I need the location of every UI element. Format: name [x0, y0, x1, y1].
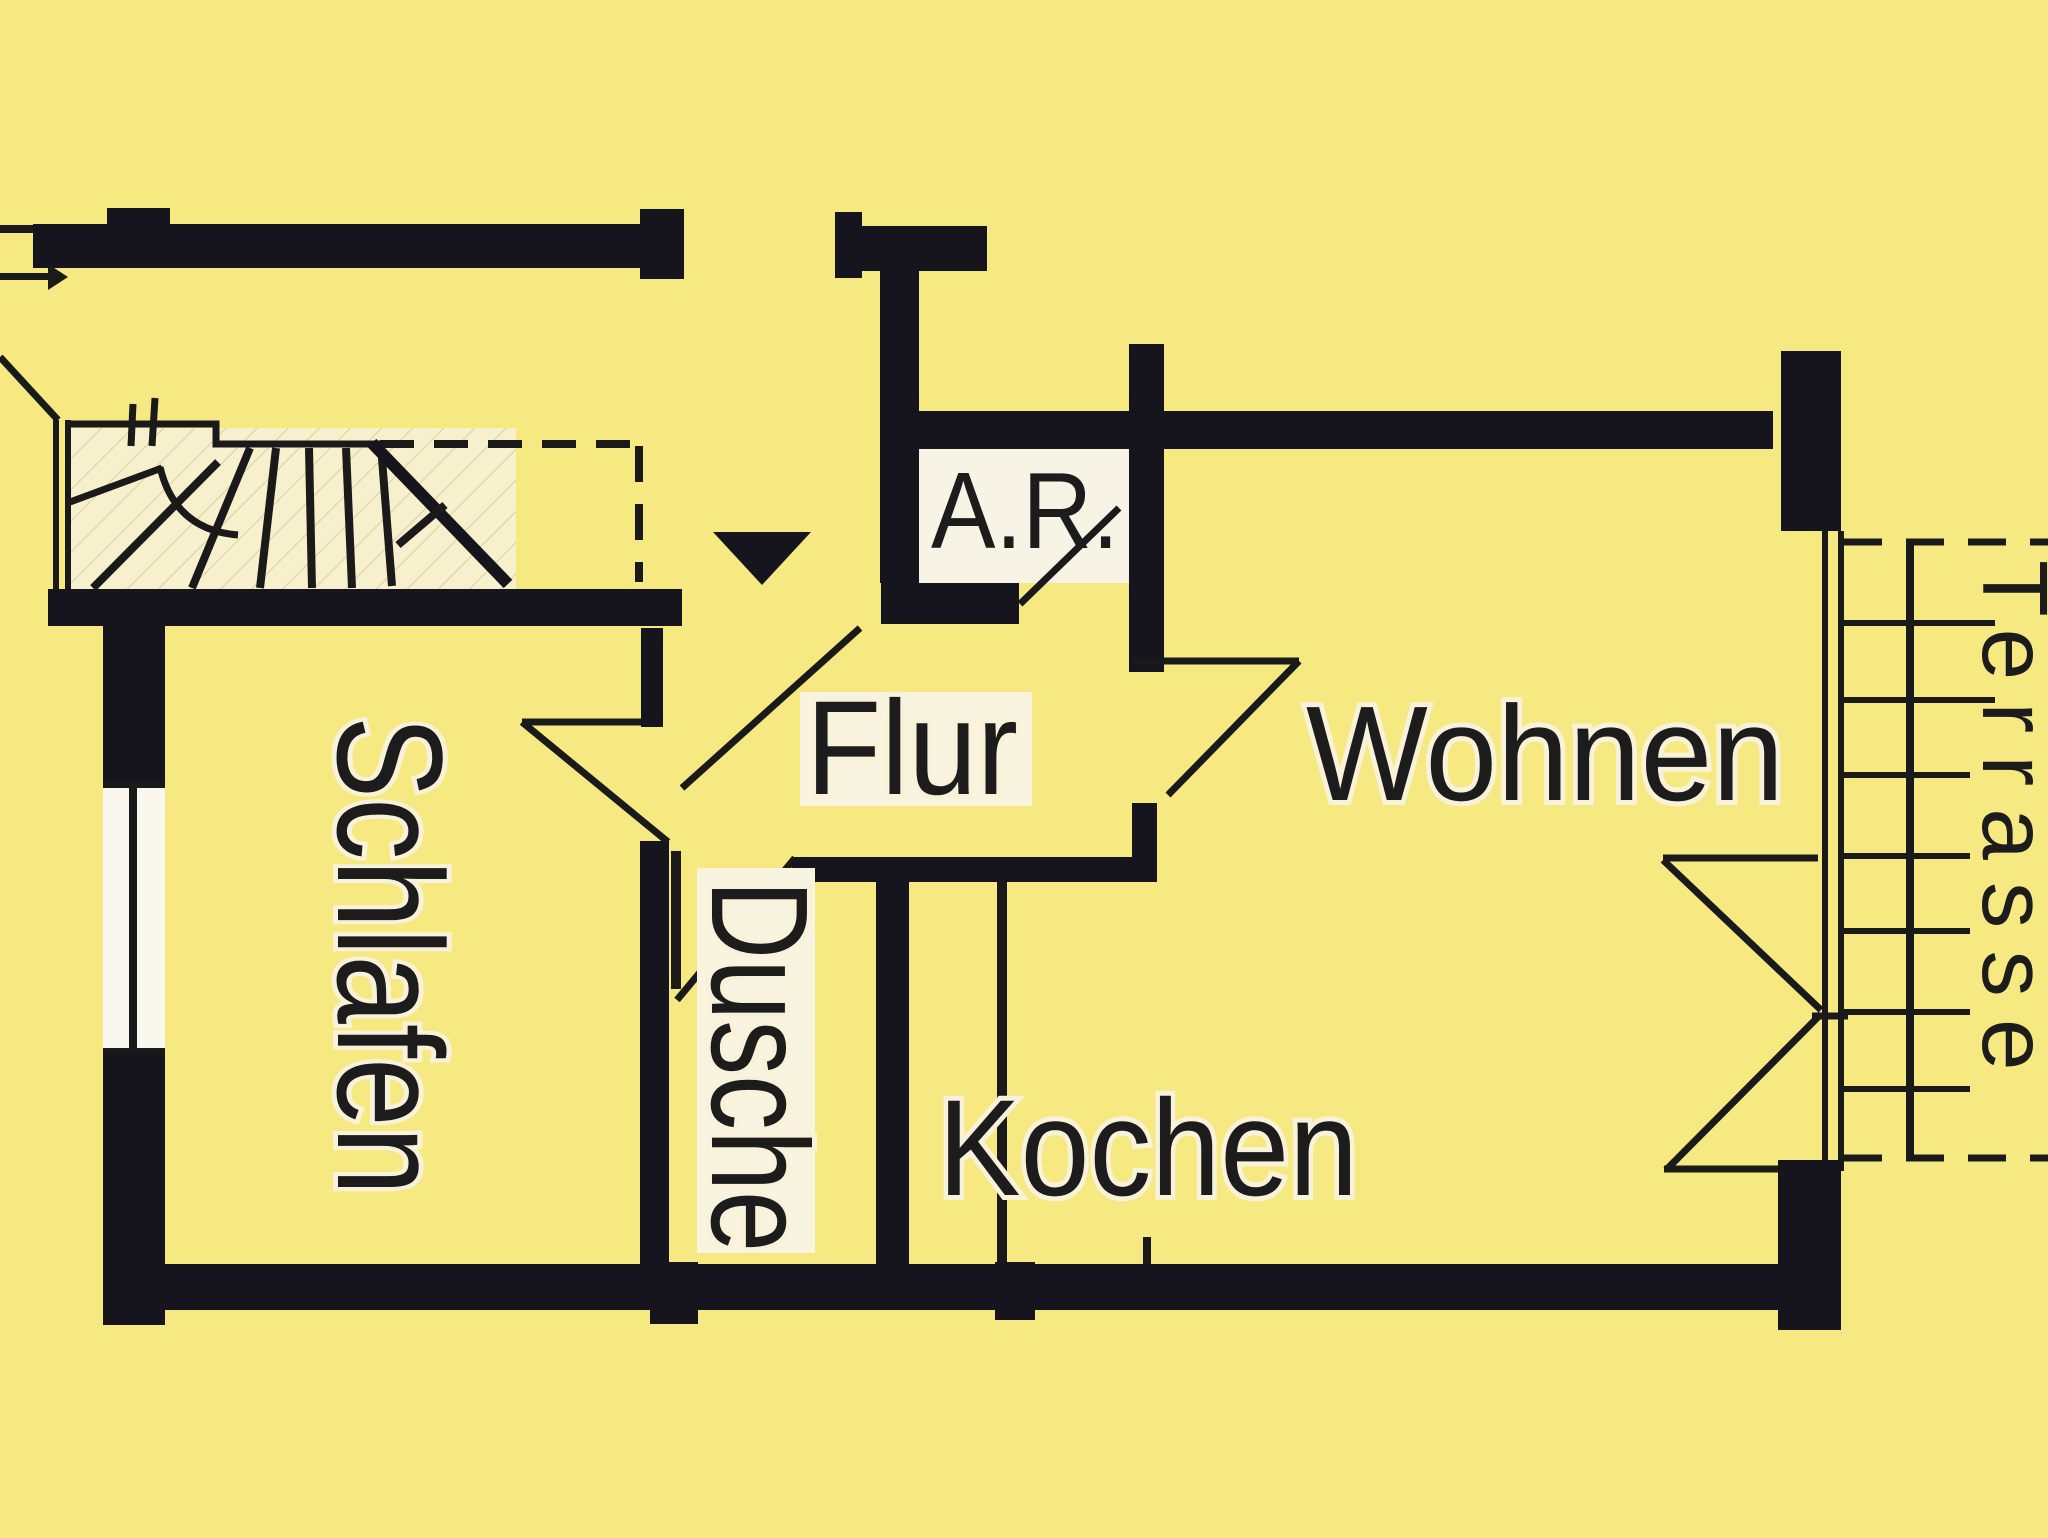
svg-text:Dusche: Dusche — [682, 880, 836, 1252]
svg-text:Flur: Flur — [806, 674, 1018, 823]
svg-text:Kochen: Kochen — [938, 1072, 1358, 1225]
svg-text:Wohnen: Wohnen — [1306, 678, 1784, 829]
svg-text:Schlafen: Schlafen — [306, 716, 474, 1195]
svg-text:Terrasse: Terrasse — [1963, 560, 2048, 1093]
svg-text:A.R.: A.R. — [931, 450, 1119, 572]
